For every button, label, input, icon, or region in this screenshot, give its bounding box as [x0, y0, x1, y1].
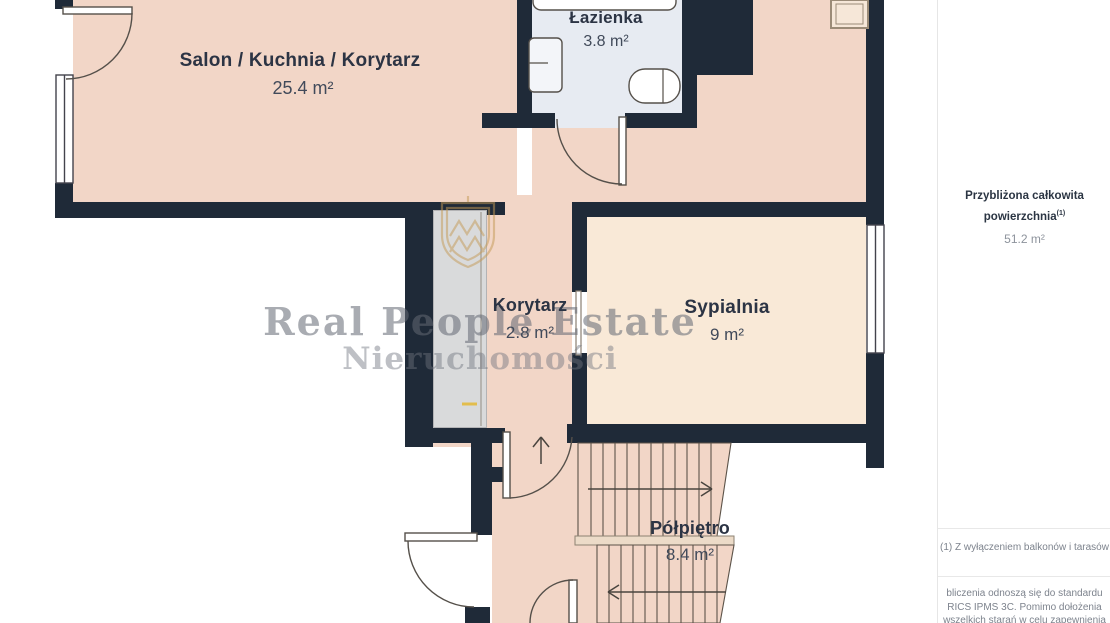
- footnote-2: bliczenia odnoszą się do standardu RICS …: [940, 587, 1109, 623]
- total-area-label: Przybliżona całkowita powierzchnia(1): [942, 188, 1107, 226]
- radiator: [831, 0, 868, 28]
- window: [867, 225, 884, 353]
- room-label-sypialnia: Sypialnia: [627, 297, 827, 319]
- room-area-polpietro: 8.4 m²: [615, 545, 765, 565]
- door: [530, 580, 577, 623]
- room-area-salon: 25.4 m²: [153, 78, 453, 99]
- footnote-1: (1) Z wyłączeniem balkonów i tarasów: [940, 541, 1109, 555]
- watermark-logo: [442, 196, 494, 267]
- entry-up-arrow: [533, 437, 549, 464]
- total-area-label-line1: Przybliżona całkowita: [965, 190, 1084, 202]
- room-label-salon: Salon / Kuchnia / Korytarz: [100, 50, 500, 72]
- footnote-2-line1: bliczenia odnoszą się do standardu: [946, 588, 1102, 599]
- window: [56, 75, 73, 183]
- sidebar-divider: [938, 576, 1110, 577]
- door: [557, 117, 626, 185]
- footnote-2-line3: wszelkich starań w celu zapewnienia: [943, 615, 1106, 623]
- sidebar-divider: [938, 528, 1110, 529]
- room-area-korytarz: 2.8 m²: [455, 323, 605, 343]
- total-area-footnote-marker: (1): [1057, 210, 1066, 217]
- total-area-value: 51.2 m²: [942, 232, 1107, 246]
- total-area-label-line2: powierzchnia: [984, 211, 1057, 223]
- room-area-sypialnia: 9 m²: [627, 325, 827, 345]
- door: [405, 533, 477, 607]
- room-area-lazienka: 3.8 m²: [531, 33, 681, 51]
- footnote-2-line2: RICS IPMS 3C. Pomimo dołożenia: [947, 602, 1102, 613]
- sidebar-panel: Przybliżona całkowita powierzchnia(1) 51…: [937, 0, 1110, 623]
- room-label-polpietro: Półpiętro: [615, 518, 765, 539]
- floor-plan-page: Real People Estate Nieruchomości Salon /…: [0, 0, 1110, 623]
- room-label-lazienka: Łazienka: [531, 8, 681, 28]
- toilet: [629, 69, 680, 103]
- room-label-korytarz: Korytarz: [455, 295, 605, 316]
